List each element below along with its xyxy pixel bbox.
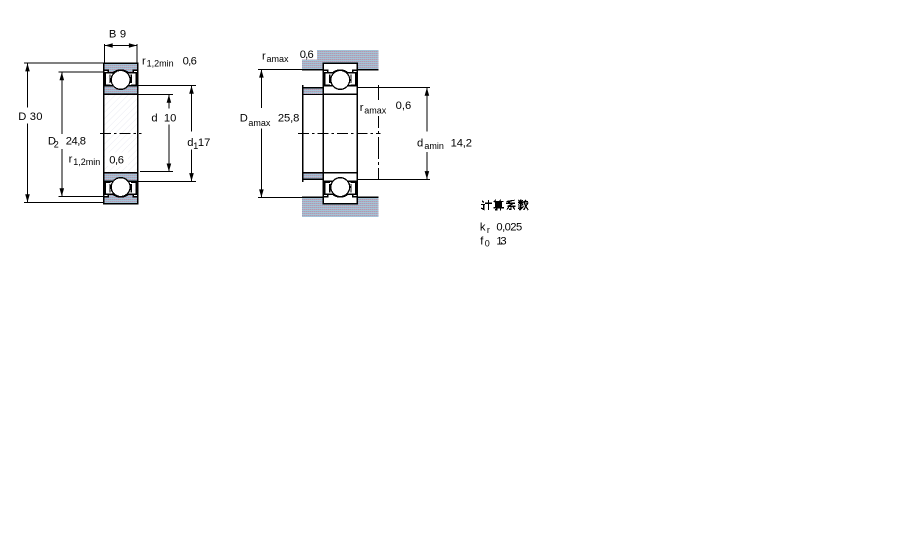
svg-text:14,2: 14,2 [451, 137, 472, 149]
svg-text:r: r [487, 225, 490, 235]
svg-text:r: r [262, 50, 266, 62]
svg-text:1,2min: 1,2min [73, 157, 100, 167]
svg-text:D: D [18, 111, 26, 123]
svg-text:1,2min: 1,2min [147, 59, 174, 69]
svg-text:2: 2 [54, 139, 59, 149]
svg-text:r: r [142, 55, 146, 67]
svg-text:25,8: 25,8 [278, 112, 299, 124]
svg-text:amax: amax [267, 54, 290, 64]
svg-text:r: r [69, 154, 73, 166]
svg-text:0,025: 0,025 [496, 221, 522, 233]
svg-text:B: B [109, 29, 116, 41]
svg-text:k: k [480, 221, 486, 233]
svg-text:0,6: 0,6 [183, 55, 197, 67]
svg-text:17: 17 [198, 137, 210, 149]
svg-text:24,8: 24,8 [66, 135, 86, 147]
svg-text:0: 0 [485, 239, 490, 249]
svg-text:0,6: 0,6 [109, 154, 124, 166]
svg-text:d: d [417, 137, 423, 149]
svg-text:D: D [240, 112, 248, 124]
svg-text:13: 13 [496, 236, 506, 248]
svg-text:10: 10 [164, 112, 176, 124]
svg-text:amin: amin [424, 141, 444, 151]
svg-text:0,6: 0,6 [396, 100, 412, 112]
svg-text:amax: amax [364, 105, 387, 115]
svg-text:r: r [360, 102, 364, 114]
svg-text:0,6: 0,6 [300, 49, 314, 61]
svg-text:30: 30 [30, 111, 43, 123]
svg-text:d: d [151, 112, 157, 124]
svg-text:amax: amax [248, 118, 271, 128]
svg-text:9: 9 [120, 29, 126, 41]
